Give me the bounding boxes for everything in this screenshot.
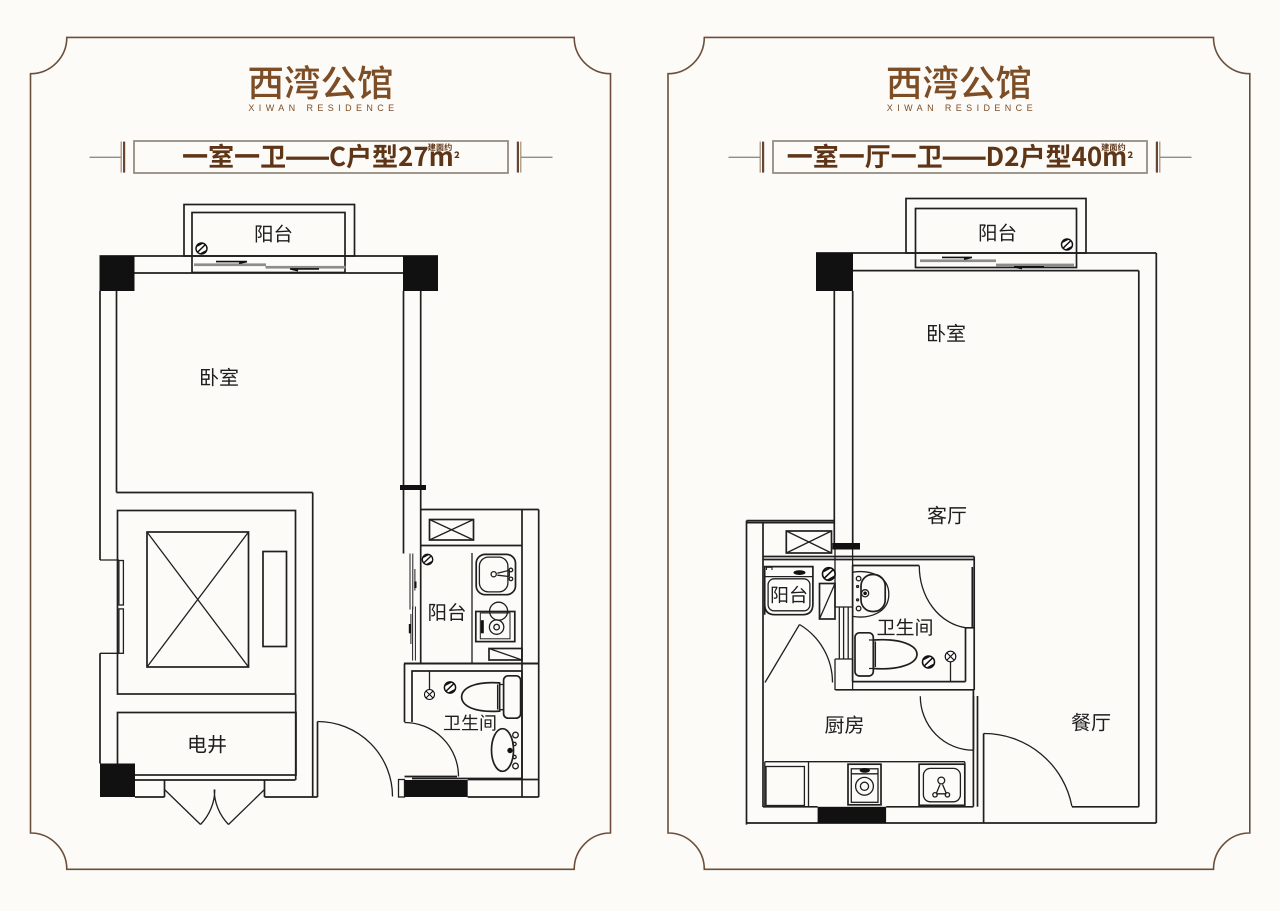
svg-text:XIWAN RESIDENCE: XIWAN RESIDENCE xyxy=(248,103,398,113)
svg-text:XIWAN RESIDENCE: XIWAN RESIDENCE xyxy=(887,103,1037,113)
